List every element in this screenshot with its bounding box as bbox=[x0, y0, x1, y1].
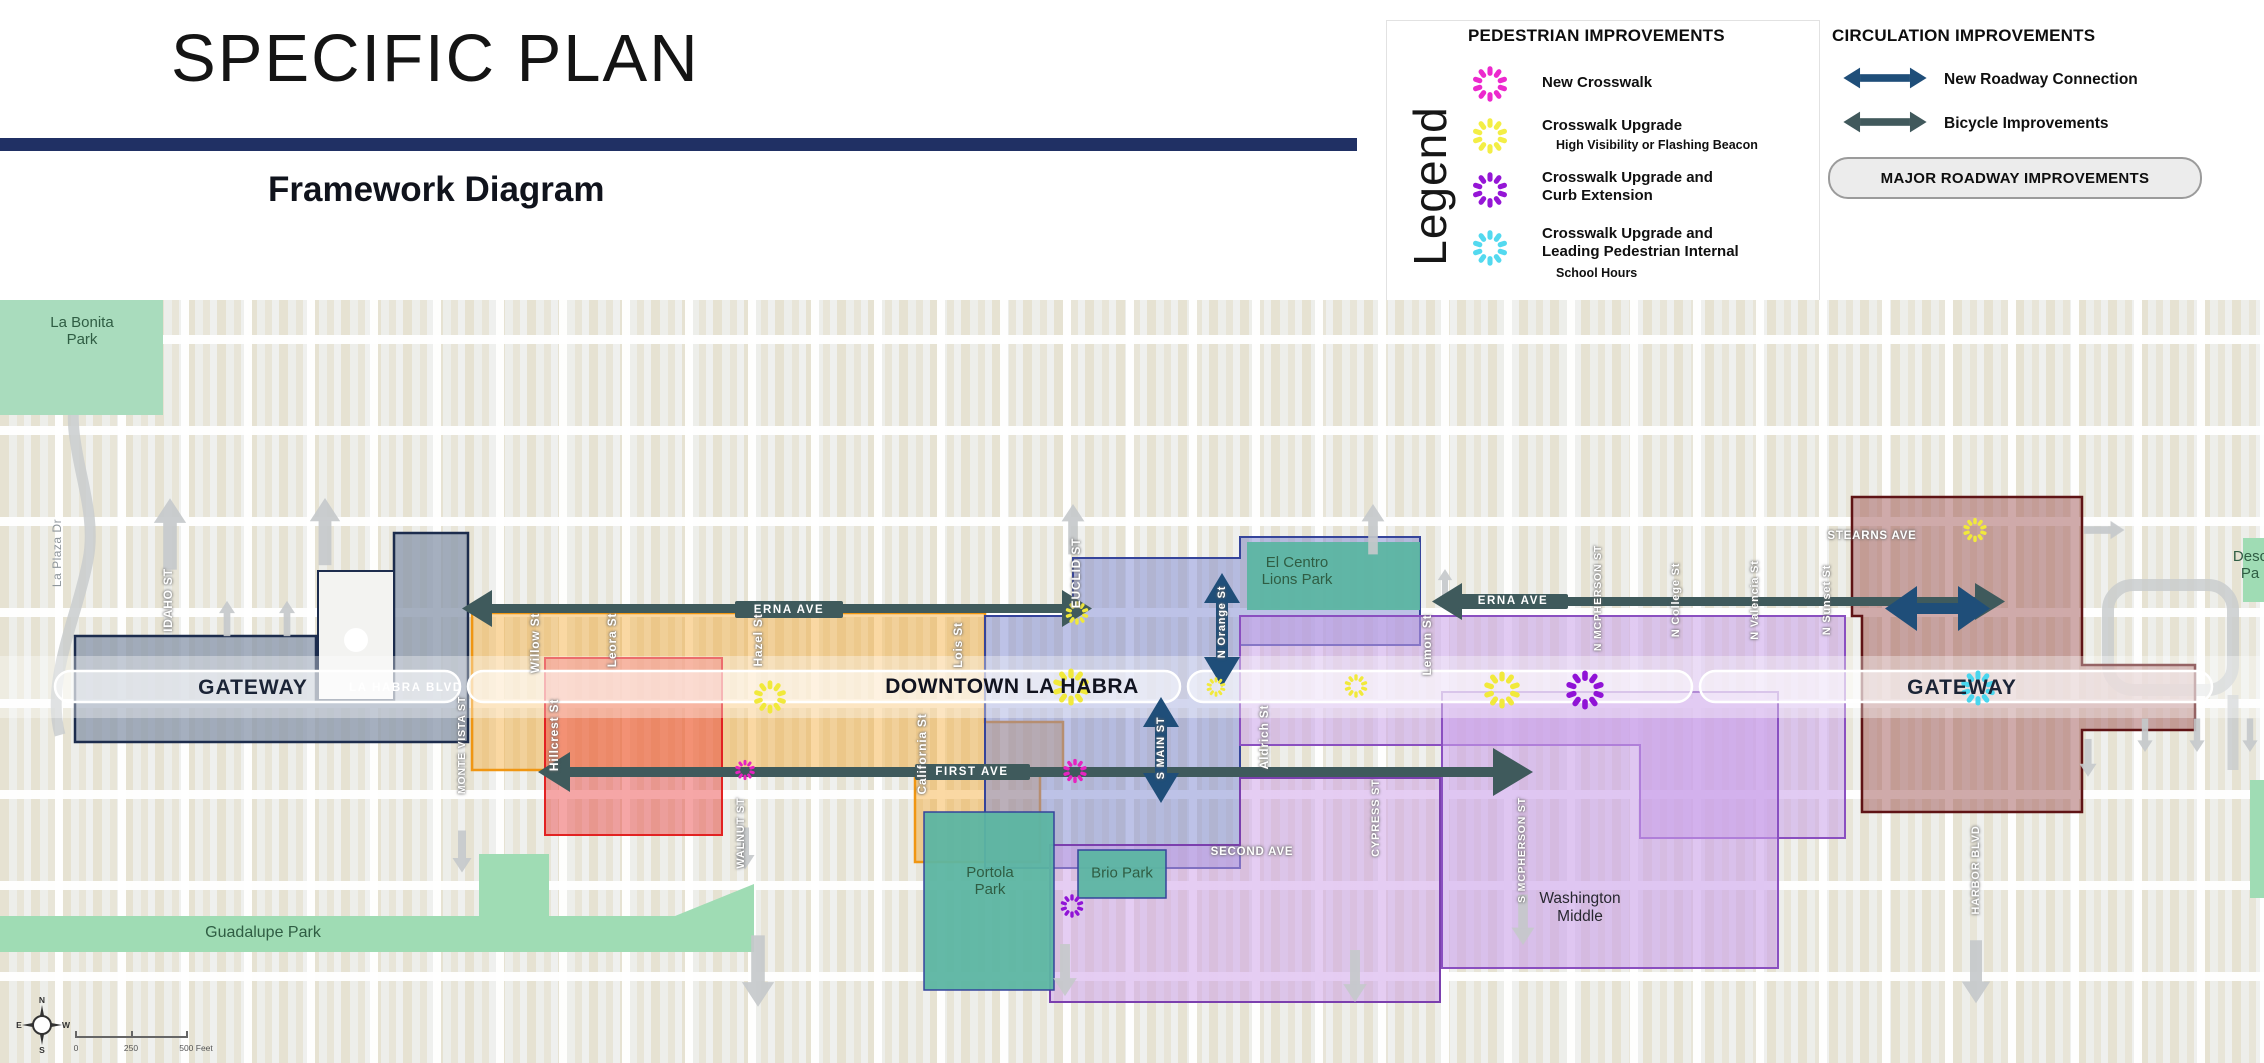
brio-park-label: Brio Park bbox=[1091, 866, 1153, 883]
title-underline-bar bbox=[0, 138, 1357, 151]
idaho-st-label: IDAHO ST bbox=[161, 568, 175, 632]
crosswalk-curb-extension-icon bbox=[1470, 170, 1510, 215]
downtown-la-habra-label: DOWNTOWN LA HABRA bbox=[885, 675, 1138, 699]
legend-crosswalk-upgrade-label: Crosswalk Upgrade bbox=[1542, 118, 1682, 135]
scale-zero: 0 bbox=[74, 1043, 79, 1053]
leora-st-label: Leora St bbox=[605, 613, 619, 667]
portola-park-label: PortolaPark bbox=[966, 865, 1014, 899]
guadalupe-park-label: Guadalupe Park bbox=[205, 924, 321, 942]
guadalupe-park-area bbox=[0, 916, 754, 952]
la-plaza-dr-label: La Plaza Dr bbox=[50, 519, 64, 587]
major-roadway-improvements-badge: MAJOR ROADWAY IMPROVEMENTS bbox=[1828, 157, 2202, 199]
lemon-st-label: Lemon St bbox=[1420, 614, 1434, 675]
legend-curb-extension-label2: Curb Extension bbox=[1542, 188, 1653, 205]
scale-tick bbox=[75, 1031, 77, 1038]
scale-tick bbox=[131, 1031, 133, 1038]
portola-park-area bbox=[924, 812, 1054, 990]
legend-curb-extension-label: Crosswalk Upgrade and bbox=[1542, 170, 1713, 187]
new-crosswalk-icon bbox=[1470, 64, 1510, 109]
lois-st-label: Lois St bbox=[951, 622, 965, 668]
zone-harbor-gateway bbox=[1852, 497, 2195, 812]
harbor-blvd-label: HARBOR BLVD bbox=[1970, 825, 1982, 914]
pedestrian-improvements-heading: PEDESTRIAN IMPROVEMENTS bbox=[1468, 26, 1725, 46]
hazel-st-label: Hazel St bbox=[751, 613, 765, 666]
edge-green-strip bbox=[2250, 780, 2264, 898]
n-valencia-st-label: N Valencia St bbox=[1749, 560, 1761, 640]
scale-mid: 250 bbox=[124, 1043, 138, 1053]
legend-school-crosswalk-label2: Leading Pedestrian Internal bbox=[1542, 244, 1739, 261]
legend-school-hours-sublabel: School Hours bbox=[1556, 266, 1637, 280]
gateway-label-east: GATEWAY bbox=[1907, 676, 2017, 700]
page-title: SPECIFIC PLAN bbox=[171, 20, 700, 97]
la-habra-blvd-label: LA HABRA BLVD bbox=[349, 682, 463, 694]
n-mcpherson-st-label: N MCPHERSON ST bbox=[1592, 545, 1604, 651]
compass-n: N bbox=[39, 995, 45, 1005]
legend-crosswalk-upgrade-sublabel: High Visibility or Flashing Beacon bbox=[1556, 138, 1758, 152]
compass-s: S bbox=[39, 1045, 45, 1055]
legend-new-roadway-label: New Roadway Connection bbox=[1944, 71, 2138, 88]
willow-st-label: Willow St bbox=[528, 613, 542, 673]
hillcrest-st-label: Hillcrest St bbox=[547, 699, 561, 771]
legend-bicycle-label: Bicycle Improvements bbox=[1944, 115, 2109, 132]
n-sunset-st-label: N Sunset St bbox=[1821, 565, 1833, 636]
el-centro-lions-park-label: El CentroLions Park bbox=[1262, 555, 1333, 589]
erna-ave-label-east: ERNA AVE bbox=[1478, 595, 1549, 607]
stearns-ave-label: STEARNS AVE bbox=[1827, 530, 1916, 542]
california-st-label: California St bbox=[915, 713, 929, 794]
crosswalk-upgrade-icon bbox=[1470, 116, 1510, 161]
la-bonita-park-label: La BonitaPark bbox=[50, 315, 113, 349]
legend-new-crosswalk-label: New Crosswalk bbox=[1542, 75, 1652, 92]
zone-washington-school bbox=[1442, 692, 1778, 968]
new-roadway-arrow-icon bbox=[1842, 64, 1928, 97]
scale-end: 500 Feet bbox=[179, 1043, 213, 1053]
walnut-st-label: WALNUT ST bbox=[735, 797, 747, 868]
bicycle-improvements-arrow-icon bbox=[1842, 108, 1928, 141]
page-subtitle: Framework Diagram bbox=[268, 170, 605, 210]
washington-middle-label: WashingtonMiddle bbox=[1539, 890, 1620, 926]
legend-title: Legend bbox=[1403, 106, 1457, 266]
desc-park-label: DescPa bbox=[2233, 549, 2264, 583]
scale-tick bbox=[186, 1031, 188, 1038]
guadalupe-park-taper bbox=[675, 884, 754, 916]
monte-vista-st-label: MONTE VISTA ST bbox=[456, 696, 468, 794]
green-block bbox=[479, 854, 549, 916]
n-college-st-label: N College St bbox=[1670, 563, 1682, 637]
blvd-pill-mid bbox=[1188, 671, 1692, 702]
legend-school-crosswalk-label: Crosswalk Upgrade and bbox=[1542, 226, 1713, 243]
circulation-improvements-heading: CIRCULATION IMPROVEMENTS bbox=[1832, 26, 2095, 46]
s-mcpherson-st-label: S MCPHERSON ST bbox=[1516, 797, 1528, 903]
first-ave-label: FIRST AVE bbox=[935, 766, 1008, 778]
euclid-st-label: EUCLID ST bbox=[1069, 538, 1083, 609]
second-ave-label: SECOND AVE bbox=[1211, 846, 1294, 858]
aldrich-st-label: Aldrich St bbox=[1257, 705, 1271, 770]
crosswalk-school-hours-icon bbox=[1470, 228, 1510, 273]
culdesac bbox=[344, 628, 368, 652]
cypress-st-label: CYPRESS ST bbox=[1370, 779, 1382, 857]
s-main-st-label: S MAIN ST bbox=[1155, 717, 1167, 780]
n-orange-st-label: N Orange St bbox=[1216, 586, 1228, 658]
gateway-label-west: GATEWAY bbox=[198, 676, 308, 700]
compass-w: W bbox=[62, 1020, 70, 1030]
compass-e: E bbox=[16, 1020, 22, 1030]
